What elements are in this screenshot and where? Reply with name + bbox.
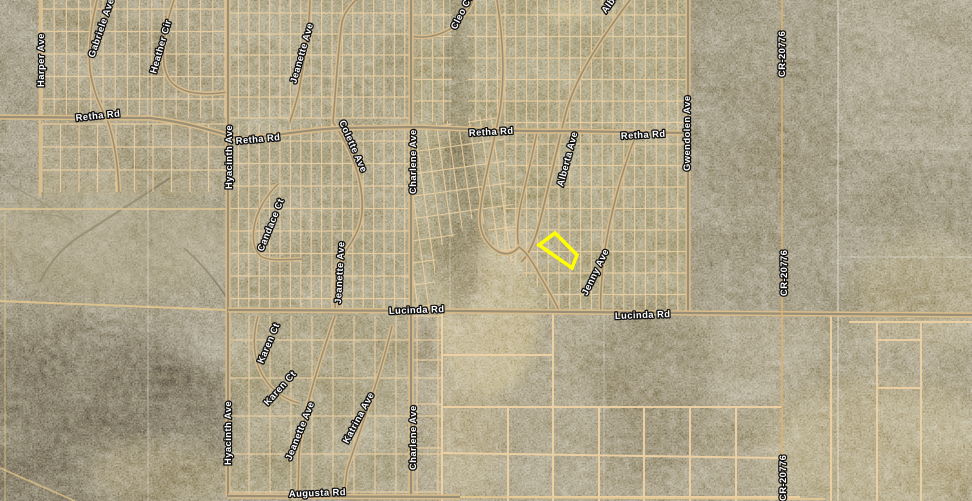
svg-text:Retha Rd: Retha Rd bbox=[469, 125, 514, 138]
svg-text:Lucinda Rd: Lucinda Rd bbox=[615, 308, 671, 321]
svg-text:Hyacinth Ave: Hyacinth Ave bbox=[222, 401, 233, 465]
svg-text:Gwendolen Ave: Gwendolen Ave bbox=[681, 96, 692, 171]
svg-text:Lucinda Rd: Lucinda Rd bbox=[389, 303, 445, 316]
svg-text:Harper Ave: Harper Ave bbox=[35, 33, 46, 87]
svg-text:Charlene Ave: Charlene Ave bbox=[407, 129, 418, 194]
svg-text:CR-20776: CR-20776 bbox=[776, 31, 787, 77]
svg-text:Retha Rd: Retha Rd bbox=[621, 128, 666, 141]
svg-text:Augusta Rd: Augusta Rd bbox=[289, 486, 346, 499]
svg-text:CR-20776: CR-20776 bbox=[777, 455, 788, 501]
svg-text:Charlene Ave: Charlene Ave bbox=[407, 405, 418, 470]
svg-text:Hyacinth Ave: Hyacinth Ave bbox=[223, 125, 234, 189]
svg-text:CR-20776: CR-20776 bbox=[778, 250, 789, 296]
